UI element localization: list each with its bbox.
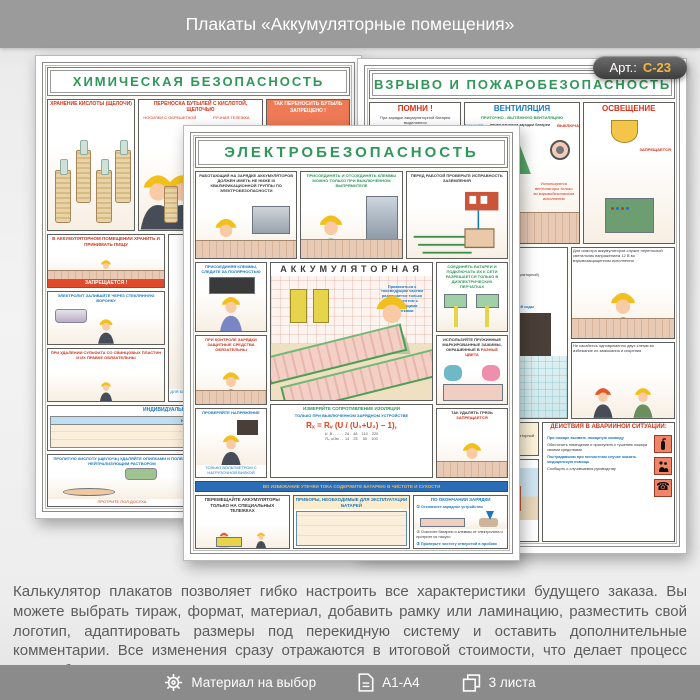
worker-icon [253,530,270,548]
poster-electrical-title: ЭЛЕКТРОБЕЗОПАСНОСТЬ [198,140,505,165]
elec-grounding-panel: ПЕРЕД РАБОТОЙ ПРОВЕРЬТЕ ИСПРАВНОСТЬ ЗАЗЕ… [406,171,508,259]
down-arrow-icon [486,511,494,520]
poster-chemical-title: ХИМИЧЕСКАЯ БЕЗОПАСНОСТЬ [50,70,347,93]
electrical-row-3: ПЕРЕМЕЩАЙТЕ АККУМУЛЯТОРЫ ТОЛЬКО НА СПЕЦИ… [195,495,508,549]
ventilation-line1: ПРИТОЧНО - ВЫТЯЖНУЮ ВЕНТИЛЯЦИЮ [465,115,578,122]
electrical-right-column: СОЕДИНЯТЬ БАТАРЕИ И ПОДКЛЮЧАТЬ ИХ К СЕТИ… [436,262,508,478]
charging-post-icon [290,289,306,323]
worker-icon [213,291,250,331]
telephone-icon: ☎ [654,479,672,497]
footer-item-sheets: 3 листа [462,674,536,692]
chem-carry-title: ПЕРЕНОСКА БУТЫЛЕЙ С КИСЛОТОЙ, ЩЕЛОЧЬЮ [139,100,262,115]
poster-electrical-titlebar: ЭЛЕКТРОБЕЗОПАСНОСТЬ [195,137,508,168]
clamps-off-title: ПРИСОЕДИНЯТЬ И ОТСОЕДИНЯТЬ КЛЕММЫ МОЖНО … [301,172,401,189]
elec-resistance-panel: ИЗМЕРЯЙТЕ СОПРОТИВЛЕНИЕ ИЗОЛЯЦИИ ТОЛЬКО … [270,404,433,478]
emergency-items: При пожаре вызвать пожарную команду Обес… [545,435,651,540]
emergency-item: Сообщить о случившемся руководству [545,466,651,473]
lighting-title: ОСВЕЩЕНИЕ [584,103,674,115]
fire-right-column: Для осмотра аккумуляторов служит перенос… [571,247,675,419]
lighting-warn: ЗАПРЕЩАЕТСЯ [637,146,672,153]
cable-icon [454,306,458,327]
chem-spill-panel: ПРОЛИТУЮ КИСЛОТУ (ЩЕЛОЧЬ) УДАЛЯЙТЕ ОПИЛК… [47,454,197,507]
remember-title: ПОМНИ ! [370,103,460,115]
elec-after-charge-panel: ПО ОКОНЧАНИИ ЗАРЯДКИ ① Отключите зарядно… [413,495,508,549]
acid-carboy-icon [115,150,131,203]
rectifier-cabinet-icon [366,196,398,241]
emergency-title: ДЕЙСТВИЯ В АВАРИЙНОЙ СИТУАЦИИ: [543,423,674,433]
voltage-title: ПРОВЕРЯЙТЕ НАПРЯЖЕНИЕ [196,409,266,416]
pink-clamp-icon [482,365,500,381]
article-badge: Арт.: С-23 [593,56,687,79]
bottle-neck [60,159,68,174]
battery-bench [196,240,296,258]
electrical-mid: ПРИСОЕДИНЯЯ КЛЕММЫ, СЛЕДИТЕ ЗА ПОЛЯРНОСТ… [195,262,508,478]
control-panel-icon [252,206,290,235]
elec-clips-panel: ИСПОЛЬЗУЙТЕ ПРУЖИННЫЕ МАРКИРОВАННЫЕ ЗАЖИ… [436,335,508,405]
battery-bench [437,461,507,477]
dirt-warn: ЗАПРЕЩАЕТСЯ [456,415,487,420]
fire-lamp-panel: Для осмотра аккумуляторов служит перенос… [571,247,675,339]
terminal-dot [621,207,624,210]
fire-emergency-panel: ДЕЙСТВИЯ В АВАРИЙНОЙ СИТУАЦИИ: При пожар… [542,422,675,542]
info-footer: Материал на выбор А1-А4 3 листа [0,665,700,700]
worker-icon [215,430,247,466]
chem-no-food-panel: В АККУМУЛЯТОРНОМ ПОМЕЩЕНИИ ХРАНИТЬ И ПРИ… [47,234,165,288]
page-icon [358,673,374,692]
stretcher-label: НОСИЛКИ С ОБРЕШЕТКОЙ [139,115,200,122]
ventilation-off: ВЫКЛЮЧАЮТ [555,122,579,129]
no-food-title: В АККУМУЛЯТОРНОМ ПОМЕЩЕНИИ ХРАНИТЬ И ПРИ… [48,235,164,248]
worker-icon [93,315,119,344]
trolley-title: ПЕРЕМЕЩАЙТЕ АККУМУЛЯТОРЫ ТОЛЬКО НА СПЕЦИ… [196,496,289,515]
no-food-illustration [48,248,164,279]
grounding-diagram [407,184,507,258]
battery-top-icon [420,518,465,527]
bottle-neck [120,140,128,155]
worker-icon [628,383,660,418]
footer-format-label: А1-А4 [382,675,420,690]
chem-storage-illustration [48,108,134,230]
voltage-note: ТОЛЬКО ВОЛЬТМЕТРОМ С НАГРУЗОЧНОЙ ВИЛКОЙ [196,465,266,477]
clamps-off-illustration [301,189,401,258]
terminals-text: Не касайтесь одновременно двух клемм во … [572,343,674,355]
voltmeter-icon [237,420,258,435]
battery-rack-icon [605,198,654,233]
worker-icon [587,383,619,418]
spill-title: ПРОЛИТУЮ КИСЛОТУ (ЩЕЛОЧЬ) УДАЛЯЙТЕ ОПИЛК… [48,455,196,467]
trolley-illustration [196,515,289,548]
grounding-illustration [407,184,507,258]
lamp-text: Для осмотра аккумуляторов служит перенос… [572,248,674,264]
chemical-left-column: В АККУМУЛЯТОРНОМ ПОМЕЩЕНИИ ХРАНИТЬ И ПРИ… [47,234,165,402]
article-code: С-23 [643,60,671,75]
polarity-title: ПРИСОЕДИНЯЯ КЛЕММЫ, СЛЕДИТЕ ЗА ПОЛЯРНОСТ… [196,263,266,275]
charging-post-icon [313,289,329,323]
elec-battery-room-inset: АККУМУЛЯТОРНАЯ Прикасаться к токоведущим… [270,262,433,401]
resistance-title: ИЗМЕРЯЙТЕ СОПРОТИВЛЕНИЕ ИЗОЛЯЦИИ [271,405,432,413]
sulfate-title: ПРИ УДАЛЕНИИ СУЛЬФАТА СО СВИНЦОВЫХ ПЛАСТ… [48,349,164,361]
electrical-left-column: ПРИСОЕДИНЯЯ КЛЕММЫ, СЛЕДИТЕ ЗА ПОЛЯРНОСТ… [195,262,267,478]
battery-room-scene: Прикасаться к токоведущим частям разреша… [271,276,432,400]
elec-dirt-panel: ТАК УДАЛЯТЬ ГРЯЗЬ ЗАПРЕЩАЕТСЯ [436,408,508,478]
bottle-neck [80,140,88,155]
clips-illustration [437,358,507,404]
fire-terminals-panel: Не касайтесь одновременно двух клемм во … [571,342,675,419]
battery-bench [301,239,401,258]
emergency-icons: ☎ [654,435,672,540]
cable-icon [485,306,489,327]
elec-ppe-control-panel: ПРИ КОНТРОЛЕ ЗАРЯДКИ ЗАЩИТНЫЕ СРЕДСТВА О… [195,335,267,405]
voltage-illustration [196,416,266,465]
battery-block-icon [443,384,504,402]
page-header: Плакаты «Аккумуляторные помещения» [0,0,700,48]
qualification-illustration [196,194,296,258]
elec-qualification-panel: РАБОТАЮЩИЙ НА ЗАРЯДКЕ АККУМУЛЯТОРОВ ДОЛЖ… [195,171,297,259]
blue-clamp-icon [444,365,462,381]
chem-funnel-panel: ЭЛЕКТРОЛИТ ЗАЛИВАЙТЕ ЧЕРЕЗ СТЕКЛЯННУЮ ВО… [47,291,165,345]
footer-item-material: Материал на выбор [164,673,316,692]
footer-item-format: А1-А4 [358,673,420,692]
gloves-illustration [437,290,507,331]
carried-carboy [164,186,178,223]
jug-icon [55,309,87,323]
sulfate-illustration [48,361,164,401]
watering-can-icon [125,468,157,480]
chem-storage-panel: ХРАНЕНИЕ КИСЛОТЫ (ЩЕЛОЧИ) [47,99,135,231]
elec-gloves-panel: СОЕДИНЯТЬ БАТАРЕИ И ПОДКЛЮЧАТЬ ИХ К СЕТИ… [436,262,508,332]
ventilation-note: Используются вентиляторы только во взрыв… [531,181,576,202]
grounding-title: ПЕРЕД РАБОТОЙ ПРОВЕРЬТЕ ИСПРАВНОСТЬ ЗАЗЕ… [407,172,507,184]
handtruck-label: РУЧНАЯ ТЕЛЕЖКА [201,115,262,122]
emergency-item: Обесточить помещение и приступить к туше… [545,442,651,454]
fan-icon [550,140,570,160]
devices-title: ПРИБОРЫ, НЕОБХОДИМЫЕ ДЛЯ ЭКСПЛУАТАЦИИ БА… [294,496,410,509]
lamp-worker-illustration [572,264,674,338]
qualification-title: РАБОТАЮЩИЙ НА ЗАРЯДКЕ АККУМУЛЯТОРОВ ДОЛЖ… [196,172,296,194]
acid-carboy-icon [96,170,112,223]
resistance-values-2: Rₓ, кОм . . 14 25 50 100 [271,437,432,443]
electrical-row-1: РАБОТАЮЩИЙ НА ЗАРЯДКЕ АККУМУЛЯТОРОВ ДОЛЖ… [195,171,508,259]
fire-extinguisher-icon [654,435,672,453]
ppe-control-title: ПРИ КОНТРОЛЕ ЗАРЯДКИ ЗАЩИТНЫЕ СРЕДСТВА О… [196,336,266,353]
resistance-formula: Rₓ = Rᵥ (U / (U₁+U₂) − 1), [271,419,432,432]
devices-table [296,511,408,546]
chem-sulfate-panel: ПРИ УДАЛЕНИИ СУЛЬФАТА СО СВИНЦОВЫХ ПЛАСТ… [47,348,165,402]
terminals-illustration [572,355,674,418]
forbidden-carry-title: ТАК ПЕРЕНОСИТЬ БУТЫЛЬ [267,100,349,108]
table-surface [48,270,164,279]
after-step: ③ Проверьте чистоту отверстий в пробках [414,541,507,548]
polarity-illustration [196,275,266,331]
sheets-icon [462,674,481,692]
page-title: Плакаты «Аккумуляторные помещения» [186,14,515,35]
poster-electrical-frame: ЭЛЕКТРОБЕЗОПАСНОСТЬ РАБОТАЮЩИЙ НА ЗАРЯДК… [190,132,513,554]
electrical-center-column: АККУМУЛЯТОРНАЯ Прикасаться к токоведущим… [270,262,433,478]
forbidden-carry-warn: ЗАПРЕЩЕНО ! [267,108,349,115]
spill-illustration [48,467,196,499]
first-aid-people-icon [654,457,672,475]
terminal-dot [626,207,629,210]
terminal-dot [616,207,619,210]
funnel-illustration [48,304,164,344]
fire-lighting-panel: ОСВЕЩЕНИЕ ЗАПРЕЩАЕТСЯ [583,102,675,244]
ppe-control-illustration [196,353,266,404]
elec-voltage-panel: ПРОВЕРЯЙТЕ НАПРЯЖЕНИЕ ТОЛЬКО ВОЛЬТМЕТРОМ… [195,408,267,478]
spill-note: ПРОТРИТЕ ПОЛ ДОСУХА [48,499,196,506]
emergency-content: При пожаре вызвать пожарную команду Обес… [543,433,674,542]
funnel-title: ЭЛЕКТРОЛИТ ЗАЛИВАЙТЕ ЧЕРЕЗ СТЕКЛЯННУЮ ВО… [48,292,164,304]
trolley-icon [216,537,242,546]
elec-polarity-panel: ПРИСОЕДИНЯЯ КЛЕММЫ, СЛЕДИТЕ ЗА ПОЛЯРНОСТ… [195,262,267,332]
dirt-title-wrap: ТАК УДАЛЯТЬ ГРЯЗЬ ЗАПРЕЩАЕТСЯ [437,409,507,421]
elec-clamps-off-panel: ПРИСОЕДИНЯТЬ И ОТСОЕДИНЯТЬ КЛЕММЫ МОЖНО … [300,171,402,259]
ventilation-title: ВЕНТИЛЯЦИЯ [465,103,578,115]
gear-icon [164,673,183,692]
footer-sheets-label: 3 листа [489,675,536,690]
acid-carboy-icon [76,150,92,203]
battery-bench [572,318,674,338]
terminal-dot [611,207,614,210]
after-illustration [414,511,507,529]
battery-bench [196,390,266,404]
after-title: ПО ОКОНЧАНИИ ЗАРЯДКИ [414,496,507,504]
after-step: ① Отключите зарядное устройство [414,504,507,511]
lamp-icon [611,120,638,142]
clips-title-wrap: ИСПОЛЬЗУЙТЕ ПРУЖИННЫЕ МАРКИРОВАННЫЕ ЗАЖИ… [437,336,507,358]
cleanliness-band: ВО ИЗБЕЖАНИЕ УТЕЧКИ ТОКА СОДЕРЖИТЕ БАТАР… [195,481,508,492]
sawdust-pile [63,488,115,496]
bottle-neck [101,159,109,174]
footer-material-label: Материал на выбор [191,675,316,690]
poster-chemical-titlebar: ХИМИЧЕСКАЯ БЕЗОПАСНОСТЬ [47,67,350,96]
elec-trolley-panel: ПЕРЕМЕЩАЙТЕ АККУМУЛЯТОРЫ ТОЛЬКО НА СПЕЦИ… [195,495,290,549]
article-label: Арт.: [609,60,636,75]
emergency-item: Пострадавшим при несчастном случае оказа… [545,454,651,466]
cabinet-icon [516,313,551,356]
inset-title: АККУМУЛЯТОРНАЯ [271,263,432,276]
emergency-item: При пожаре вызвать пожарную команду [545,435,651,442]
elec-devices-panel: ПРИБОРЫ, НЕОБХОДИМЫЕ ДЛЯ ЭКСПЛУАТАЦИИ БА… [293,495,411,549]
chem-storage-title: ХРАНЕНИЕ КИСЛОТЫ (ЩЕЛОЧИ) [48,100,134,108]
after-step: ② Очистите батарею и клеммы от электроли… [414,529,507,541]
lighting-illustration: ЗАПРЕЩАЕТСЯ [584,115,674,243]
worker-icon [96,379,116,401]
battery-terminals [611,207,629,210]
acid-carboy-icon [55,170,71,223]
no-food-warn-strip: ЗАПРЕЩАЕТСЯ ! [48,279,164,287]
poster-electrical-safety: ЭЛЕКТРОБЕЗОПАСНОСТЬ РАБОТАЮЩИЙ НА ЗАРЯДК… [183,125,520,561]
dirt-illustration [437,421,507,477]
gloves-title: СОЕДИНЯТЬ БАТАРЕИ И ПОДКЛЮЧАТЬ ИХ К СЕТИ… [437,263,507,290]
